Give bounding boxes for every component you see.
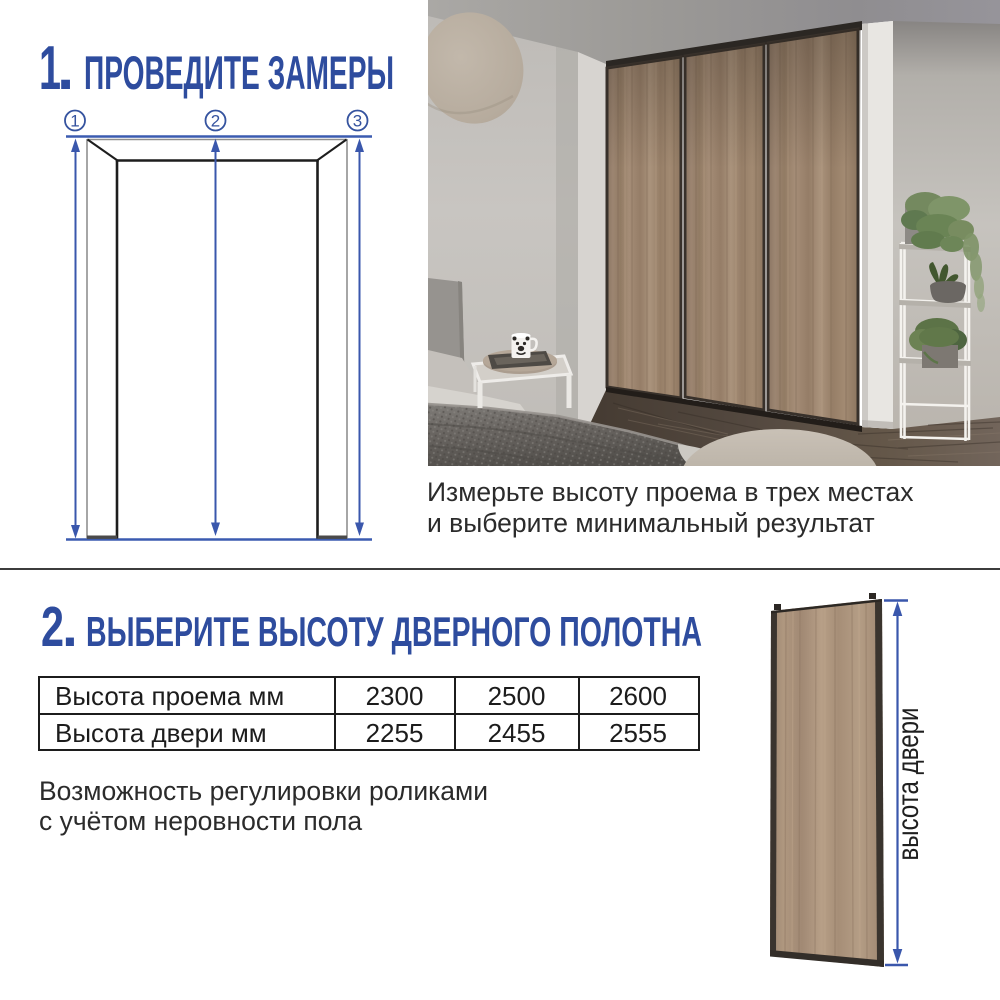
- svg-text:2: 2: [41, 595, 64, 659]
- svg-text:ВЫБЕРИТЕ ВЫСОТУ ДВЕРНОГО ПОЛОТ: ВЫБЕРИТЕ ВЫСОТУ ДВЕРНОГО ПОЛОТНА: [86, 608, 702, 655]
- svg-text:2: 2: [211, 112, 220, 131]
- svg-text:1: 1: [70, 112, 79, 131]
- svg-text:ПРОВЕДИТЕ ЗАМЕРЫ: ПРОВЕДИТЕ ЗАМЕРЫ: [84, 46, 394, 99]
- svg-text:.: .: [57, 34, 74, 100]
- svg-text:3: 3: [353, 112, 362, 131]
- svg-text:.: .: [62, 595, 78, 659]
- svg-text:высота двери: высота двери: [892, 708, 925, 861]
